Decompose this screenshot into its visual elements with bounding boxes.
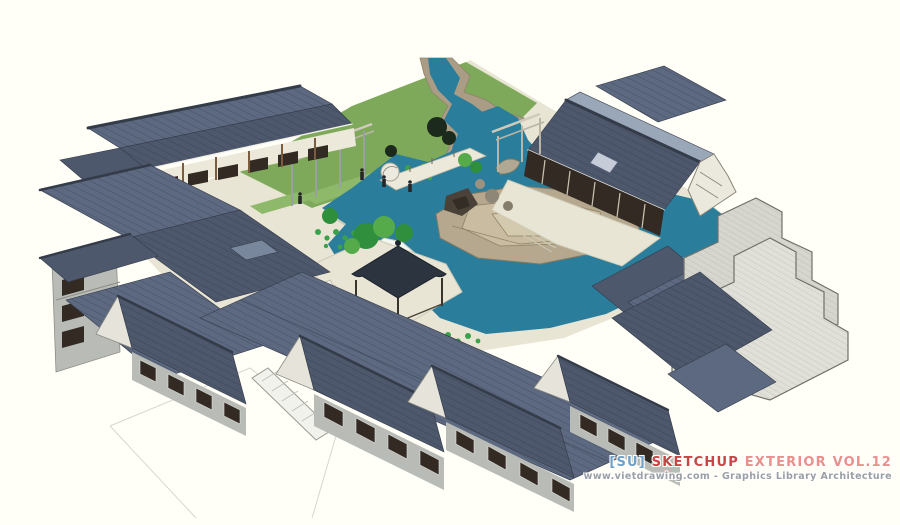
- watermark-sketchup: SKETCHUP: [652, 455, 739, 470]
- sketchup-scene: [0, 0, 900, 525]
- watermark-title-line: [SU] SKETCHUP EXTERIOR VOL.12: [584, 455, 892, 471]
- watermark-url-line: www.vietdrawing.com - Graphics Library A…: [584, 471, 892, 483]
- watermark-su: [SU]: [609, 455, 646, 470]
- watermark: [SU] SKETCHUP EXTERIOR VOL.12 www.vietdr…: [584, 455, 892, 483]
- watermark-exterior-vol: EXTERIOR VOL.12: [745, 455, 892, 470]
- render-canvas: [SU] SKETCHUP EXTERIOR VOL.12 www.vietdr…: [0, 0, 900, 525]
